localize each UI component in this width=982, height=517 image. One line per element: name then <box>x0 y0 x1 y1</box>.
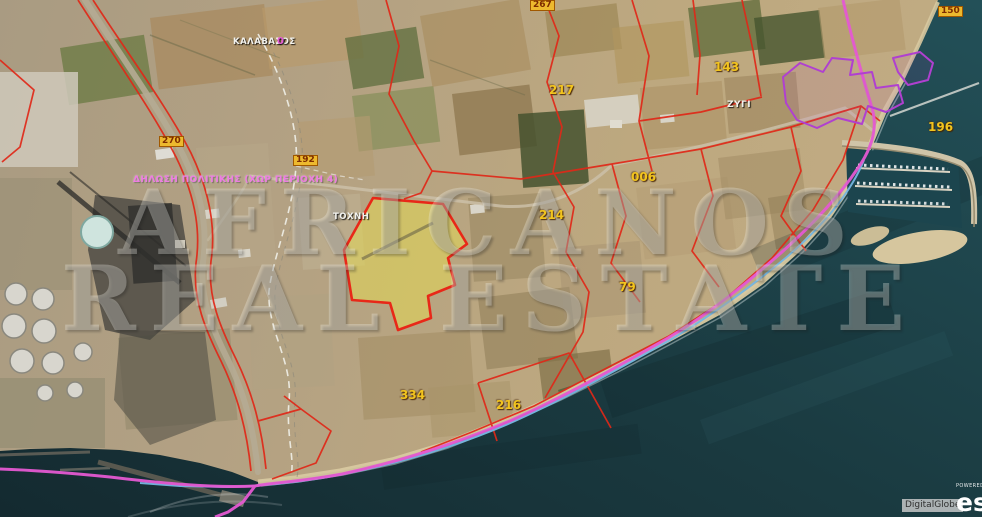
map-graphics <box>0 0 982 517</box>
parcel-number: 216 <box>496 399 521 411</box>
place-label-tochni: ΤΟΧΝΗ <box>333 213 369 222</box>
digitalglobe-credit: DigitalGlobe <box>902 499 963 512</box>
satellite-map[interactable]: AFRICANOS REAL ESTATE ΔΗΛΩΣΗ ΠΟΛΙΤΙΚΗΣ (… <box>0 0 982 517</box>
esri-logo: POWERED BY esri <box>956 483 982 517</box>
parcel-number-boxed: 270 <box>159 136 184 147</box>
parcel-number: 214 <box>539 209 564 221</box>
policy-zone-label: ΔΗΛΩΣΗ ΠΟΛΙΤΙΚΗΣ (ΧΩΡ ΠΕΡΙΟΧΗ 4) <box>133 176 338 185</box>
parcel-number: 143 <box>714 61 739 73</box>
parcel-number: 217 <box>549 84 574 96</box>
parcel-number-boxed: 192 <box>293 155 318 166</box>
parcel-number: 79 <box>619 281 636 293</box>
place-label-kalavasos-suffix: 0 <box>277 37 284 47</box>
parcel-number-boxed: 267 <box>530 0 555 11</box>
parcel-number: 196 <box>928 121 953 133</box>
parcel-number-boxed: 150 <box>938 6 963 17</box>
place-label-zygi: ΖΥΓΙ <box>727 101 751 110</box>
esri-logo-text: esri <box>956 490 982 516</box>
powered-by-text: POWERED BY <box>956 483 982 489</box>
parcel-number: 006 <box>631 171 656 183</box>
place-label-kalavasos: ΚΑΛΑΒΑΣΟΣ <box>233 38 296 47</box>
parcel-number: 334 <box>400 389 425 401</box>
